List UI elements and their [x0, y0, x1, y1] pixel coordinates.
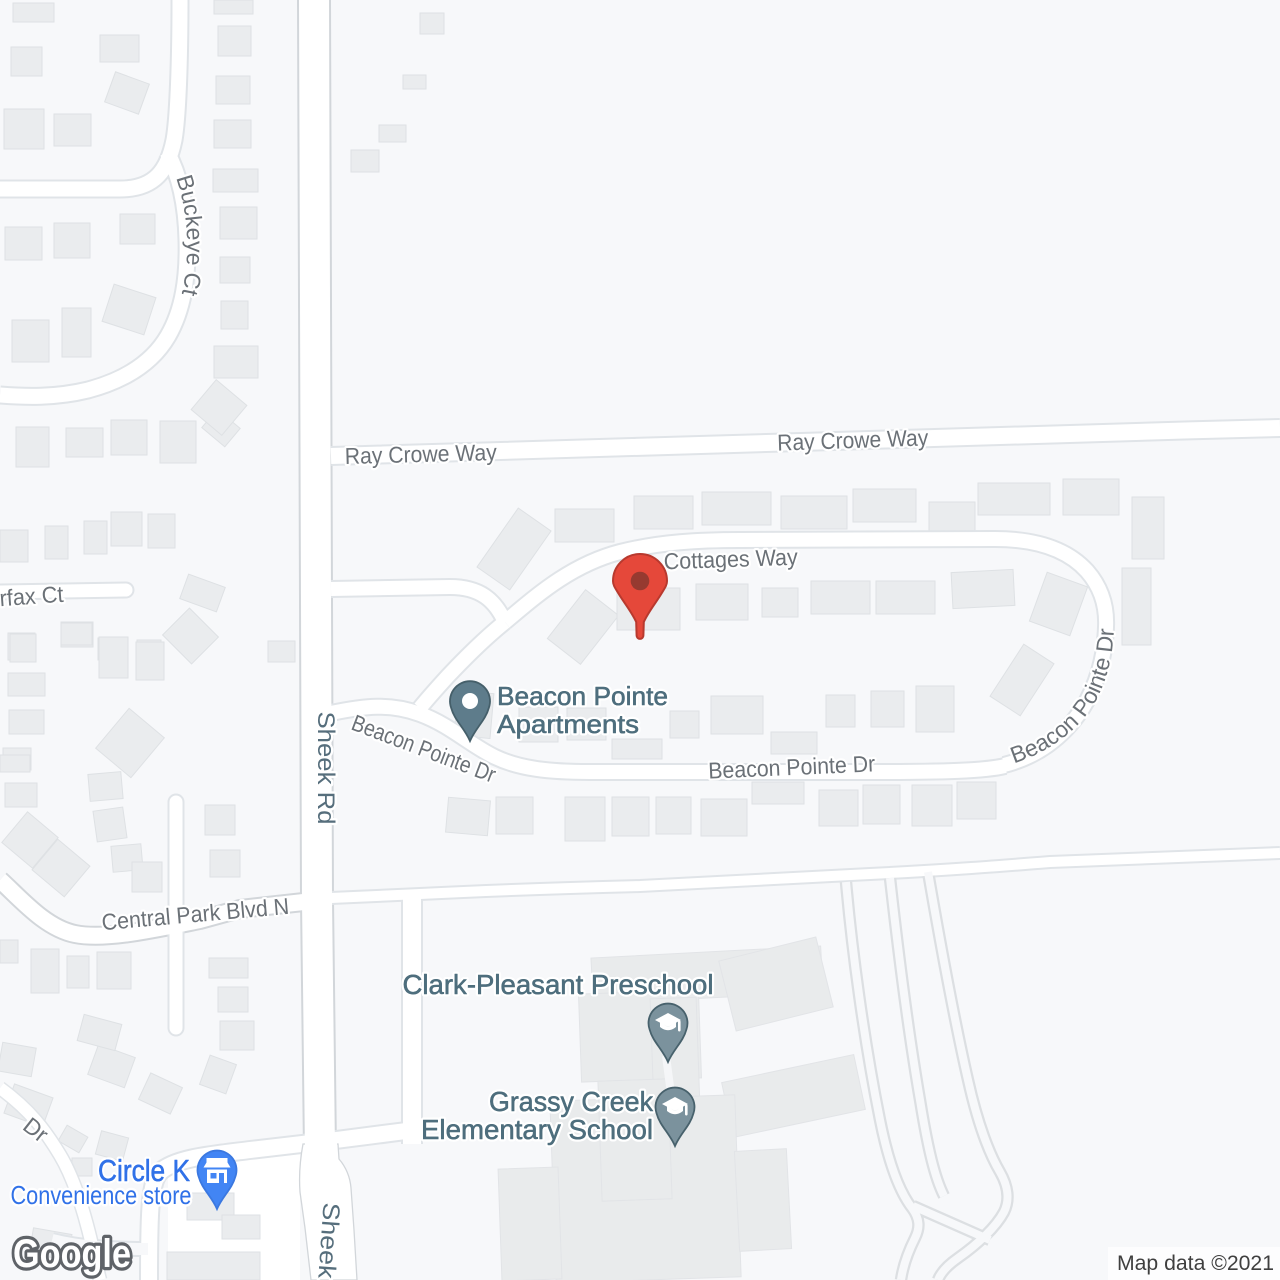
svg-text:Map data ©2021: Map data ©2021	[1117, 1252, 1274, 1275]
svg-text:Sheek: Sheek	[312, 1202, 344, 1280]
svg-text:Beacon Pointe: Beacon Pointe	[497, 681, 668, 711]
svg-text:Sheek Rd: Sheek Rd	[312, 712, 339, 825]
svg-text:rfax Ct: rfax Ct	[0, 581, 65, 611]
svg-text:Elementary School: Elementary School	[421, 1114, 653, 1145]
svg-text:Clark-Pleasant Preschool: Clark-Pleasant Preschool	[403, 969, 714, 1000]
svg-text:Google: Google	[13, 1232, 131, 1276]
svg-text:Ray Crowe Way: Ray Crowe Way	[344, 439, 497, 469]
svg-text:Convenience store: Convenience store	[11, 1180, 192, 1210]
svg-text:Ray Crowe Way: Ray Crowe Way	[777, 424, 929, 455]
svg-text:Cottages Way: Cottages Way	[663, 544, 798, 575]
svg-text:Apartments: Apartments	[497, 709, 639, 739]
svg-text:Grassy Creek: Grassy Creek	[489, 1086, 654, 1117]
